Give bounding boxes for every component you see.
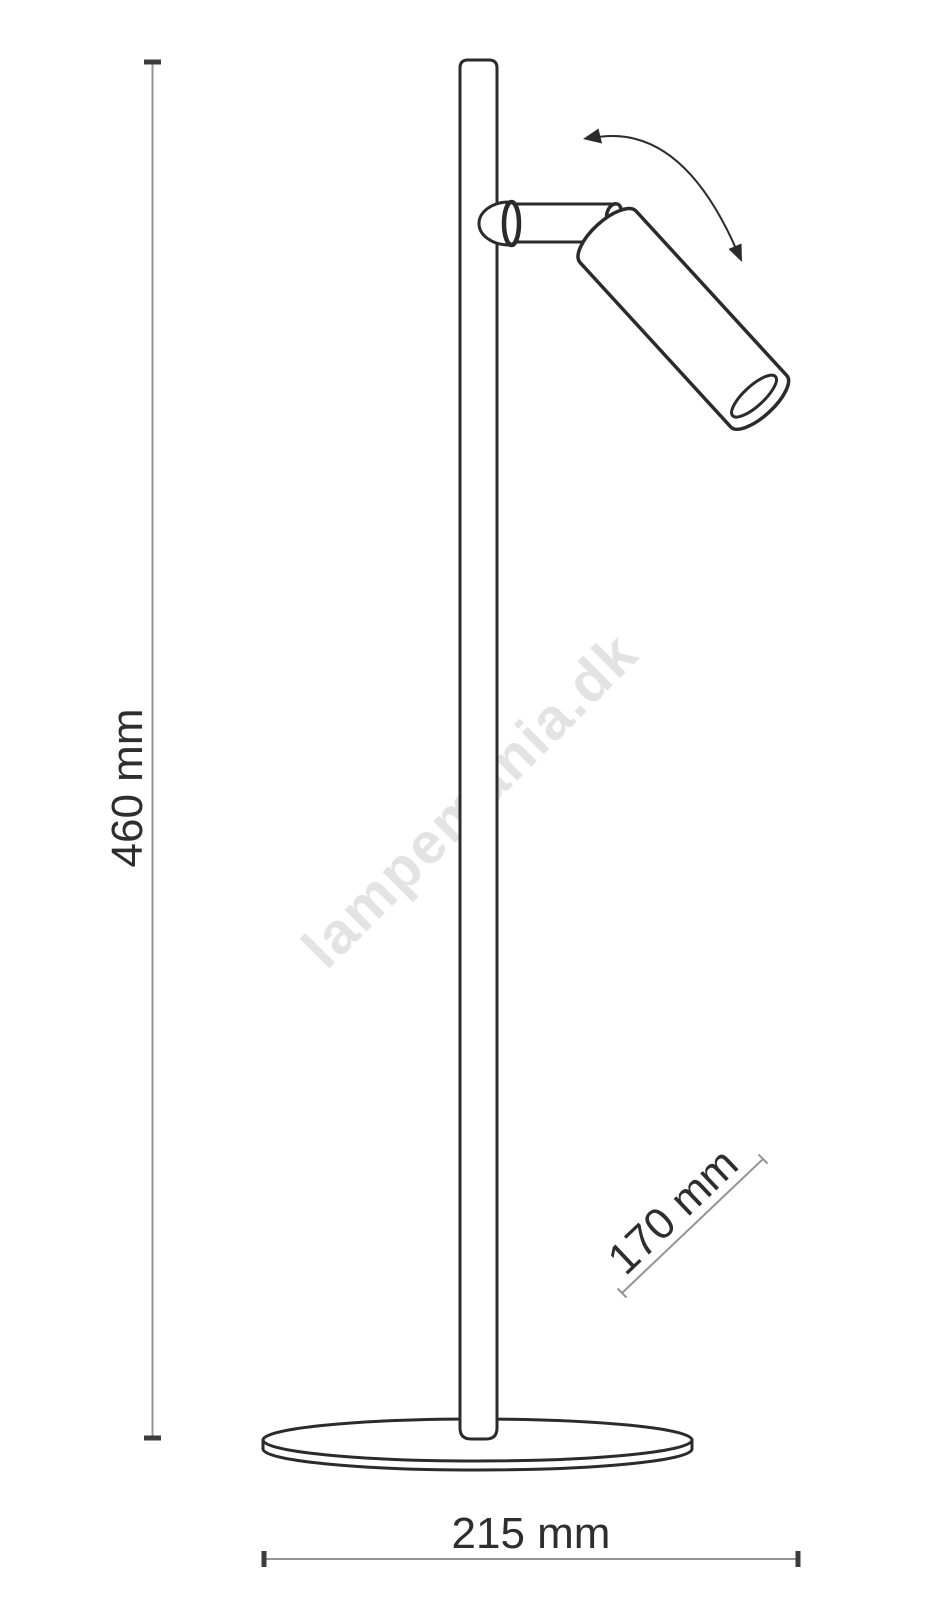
head-length-dimension: 170 mm — [599, 1139, 768, 1297]
lamp-head — [569, 199, 797, 438]
rotation-arrow-head-down — [729, 244, 743, 263]
head-length-dimension-label: 170 mm — [599, 1139, 748, 1284]
height-dimension: 460 mm — [103, 62, 161, 1438]
pole-body — [460, 60, 497, 1439]
lamp-pole — [460, 60, 497, 1439]
height-dimension-label: 460 mm — [103, 709, 152, 868]
base-width-dimension: 215 mm — [264, 1509, 798, 1567]
rotation-arrow-head-left — [583, 129, 602, 144]
pivot-ring — [504, 202, 519, 245]
base-width-dimension-label: 215 mm — [452, 1509, 611, 1558]
technical-drawing-page: lampemania.dk — [0, 0, 944, 1600]
lamp-technical-drawing: lampemania.dk — [0, 0, 944, 1600]
